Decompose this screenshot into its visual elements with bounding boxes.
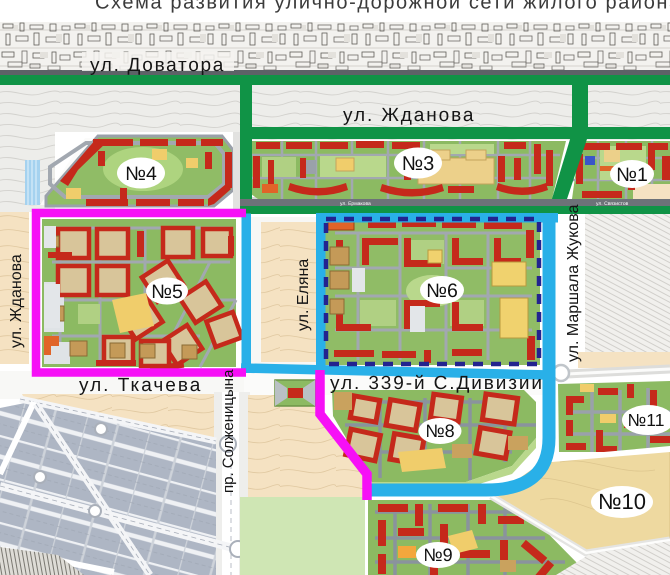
svg-text:№9: №9 — [423, 545, 452, 565]
svg-text:№1: №1 — [616, 164, 648, 186]
svg-text:№10: №10 — [598, 489, 646, 514]
svg-text:№11: №11 — [628, 410, 665, 430]
svg-text:№3: №3 — [402, 153, 435, 175]
svg-text:ул. Связистов: ул. Связистов — [596, 201, 629, 207]
svg-text:ул. Ткачева: ул. Ткачева — [79, 375, 202, 396]
svg-text:ул. Жданова: ул. Жданова — [8, 254, 25, 348]
svg-text:пр. Солженицына: пр. Солженицына — [220, 369, 237, 493]
svg-text:ул. Доватора: ул. Доватора — [90, 55, 225, 76]
svg-text:ул. Жданова: ул. Жданова — [343, 105, 475, 126]
svg-text:ул. Ермакова: ул. Ермакова — [340, 201, 371, 207]
svg-text:№4: №4 — [125, 163, 157, 185]
svg-text:Схема развития улично-дорожной: Схема развития улично-дорожной сети жило… — [95, 0, 670, 14]
svg-text:ул. 339-й С.Дивизии: ул. 339-й С.Дивизии — [330, 373, 544, 394]
svg-text:ул. Маршала Жукова: ул. Маршала Жукова — [565, 204, 582, 362]
svg-text:№8: №8 — [425, 421, 454, 441]
svg-text:№6: №6 — [426, 280, 458, 302]
svg-text:№5: №5 — [151, 281, 183, 303]
svg-text:ул. Еляна: ул. Еляна — [295, 259, 312, 331]
